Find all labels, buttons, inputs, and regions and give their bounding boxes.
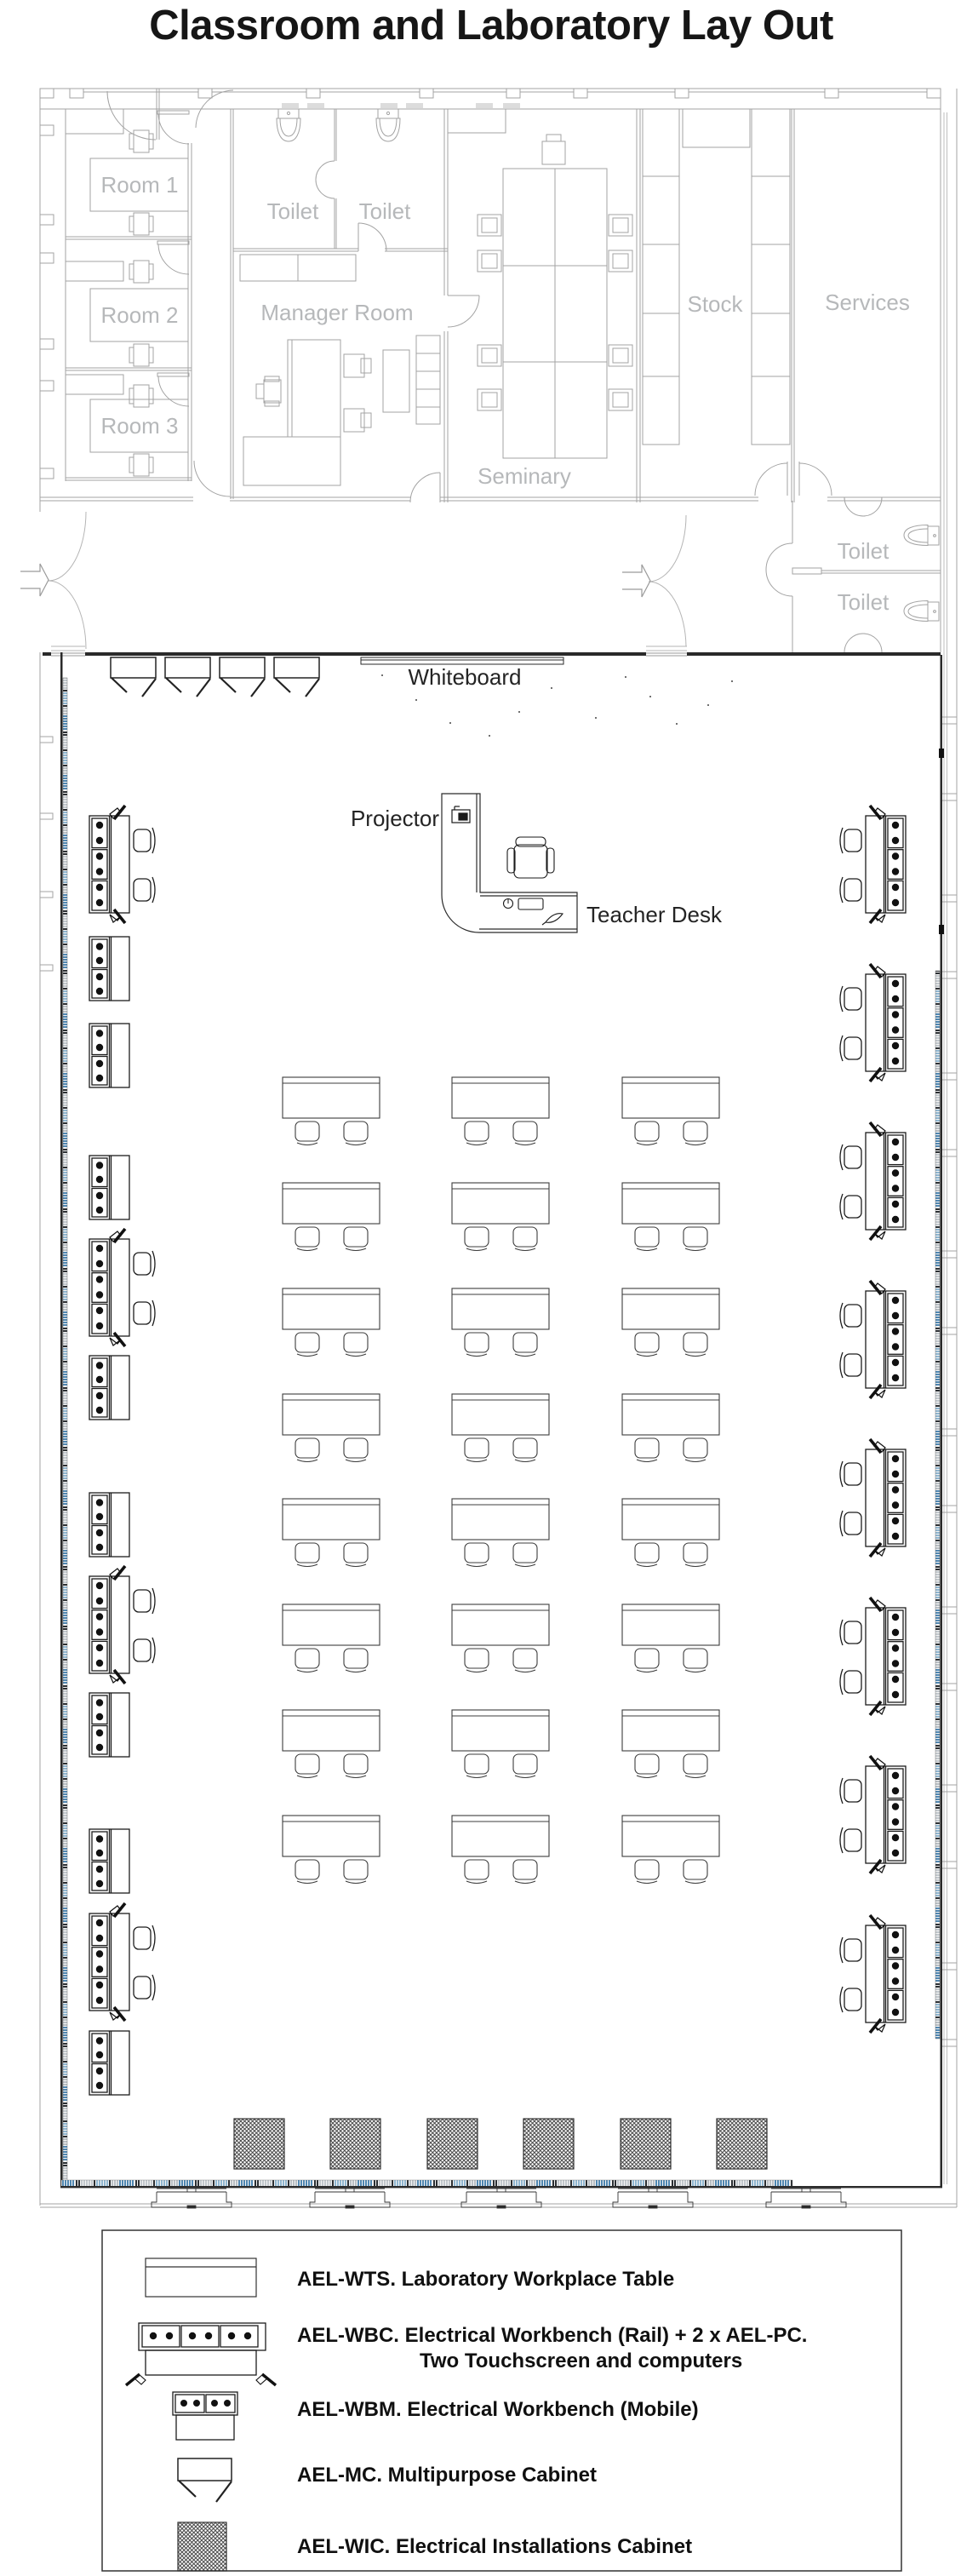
svg-text:AEL-WBC. Electrical Workbench: AEL-WBC. Electrical Workbench (Rail) + 2…: [297, 2324, 807, 2347]
svg-text:Classroom and Laboratory Lay O: Classroom and Laboratory Lay Out: [149, 3, 833, 49]
svg-text:Room 2: Room 2: [100, 302, 178, 328]
svg-text:Manager Room: Manager Room: [260, 300, 413, 325]
svg-text:Toilet: Toilet: [359, 198, 411, 224]
svg-text:Toilet: Toilet: [838, 589, 889, 615]
svg-text:AEL-MC. Multipurpose Cabinet: AEL-MC. Multipurpose Cabinet: [297, 2464, 597, 2487]
svg-text:AEL-WIC. Electrical Installati: AEL-WIC. Electrical Installations Cabine…: [297, 2535, 692, 2558]
svg-text:Toilet: Toilet: [838, 538, 889, 564]
svg-text:Services: Services: [825, 290, 910, 315]
svg-text:Whiteboard: Whiteboard: [409, 664, 522, 690]
svg-text:Projector: Projector: [351, 806, 439, 831]
svg-text:Stock: Stock: [687, 291, 743, 317]
svg-text:Room 3: Room 3: [100, 413, 178, 439]
svg-text:Toilet: Toilet: [267, 198, 319, 224]
svg-text:Two Touchscreen and computers: Two Touchscreen and computers: [420, 2349, 742, 2372]
svg-text:Teacher Desk: Teacher Desk: [586, 902, 723, 927]
svg-text:Seminary: Seminary: [478, 463, 571, 489]
svg-text:AEL-WTS. Laboratory Workplace: AEL-WTS. Laboratory Workplace Table: [297, 2268, 674, 2291]
svg-text:Room 1: Room 1: [100, 172, 178, 198]
svg-text:AEL-WBM. Electrical Workbench: AEL-WBM. Electrical Workbench (Mobile): [297, 2398, 699, 2421]
